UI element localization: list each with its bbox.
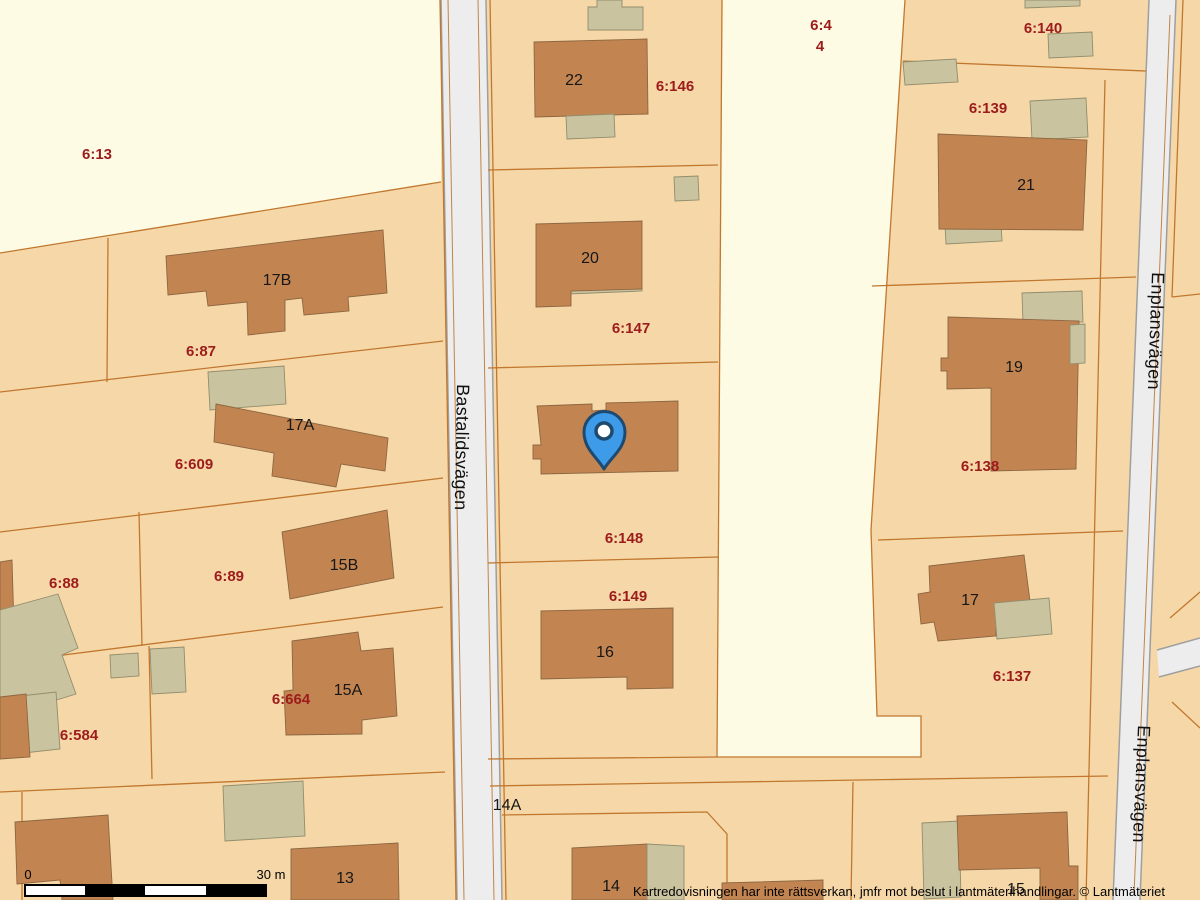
street-label-bastalidsvagen: Bastalidsvägen xyxy=(451,384,473,511)
parcel-label: 6:584 xyxy=(60,727,99,744)
attribution-text: Kartredovisningen har inte rättsverkan, … xyxy=(633,884,1165,899)
scale-bar-segment xyxy=(26,886,85,895)
building-22 xyxy=(534,39,648,117)
scale-end-label: 30 m xyxy=(257,867,286,882)
outbuilding xyxy=(566,114,615,139)
parcel-label: 6:137 xyxy=(993,668,1031,685)
parcel-label: 6:89 xyxy=(214,568,244,585)
house-number: 16 xyxy=(596,644,614,661)
pin-center-dot xyxy=(596,423,612,439)
parcel-label: 6:148 xyxy=(605,530,643,547)
parcel-label: 6:88 xyxy=(49,575,79,592)
parcel-label: 6:147 xyxy=(612,320,650,337)
scale-start-label: 0 xyxy=(24,867,31,882)
house-number: 13 xyxy=(336,870,354,887)
building xyxy=(0,694,30,759)
outbuilding xyxy=(1070,324,1085,364)
house-number: 20 xyxy=(581,250,599,267)
house-number: 14A xyxy=(493,797,522,814)
outbuilding xyxy=(994,598,1052,639)
parcel-label: 6:149 xyxy=(609,588,647,605)
parcel-label: 6:609 xyxy=(175,456,213,473)
house-number: 17 xyxy=(961,592,979,609)
parcel-label: 6:664 xyxy=(272,691,311,708)
outbuilding xyxy=(208,366,286,410)
house-number: 17B xyxy=(263,272,291,289)
outbuilding xyxy=(1030,98,1088,140)
parcel-label: 6:146 xyxy=(656,78,694,95)
parcel-label: 6:138 xyxy=(961,458,999,475)
house-number: 17A xyxy=(286,417,315,434)
outbuilding xyxy=(1022,291,1083,324)
parcel-label: 6:87 xyxy=(186,343,216,360)
house-number: 14 xyxy=(602,878,620,895)
outbuilding xyxy=(674,176,699,201)
parcel-label: 6:13 xyxy=(82,146,112,163)
cadastral-map[interactable]: Bastalidsvägen Enplansvägen Enplansvägen… xyxy=(0,0,1200,900)
outbuilding xyxy=(150,647,186,694)
building-21 xyxy=(938,134,1087,230)
parcel-label: 6:140 xyxy=(1024,20,1062,37)
house-number: 19 xyxy=(1005,359,1023,376)
parcel-label: 6:4 xyxy=(810,17,832,34)
street-label-enplansvagen: Enplansvägen xyxy=(1144,272,1168,390)
house-number: 22 xyxy=(565,72,583,89)
house-number: 15A xyxy=(334,682,363,699)
house-number: 15B xyxy=(330,557,358,574)
scale-bar-segment xyxy=(145,886,206,895)
parcel-label: 4 xyxy=(816,38,825,55)
house-number: 21 xyxy=(1017,177,1035,194)
parcel-label: 6:139 xyxy=(969,100,1007,117)
map-canvas[interactable]: Bastalidsvägen Enplansvägen Enplansvägen… xyxy=(0,0,1200,900)
outbuilding xyxy=(223,781,305,841)
outbuilding xyxy=(110,653,139,678)
outbuilding xyxy=(903,59,958,85)
